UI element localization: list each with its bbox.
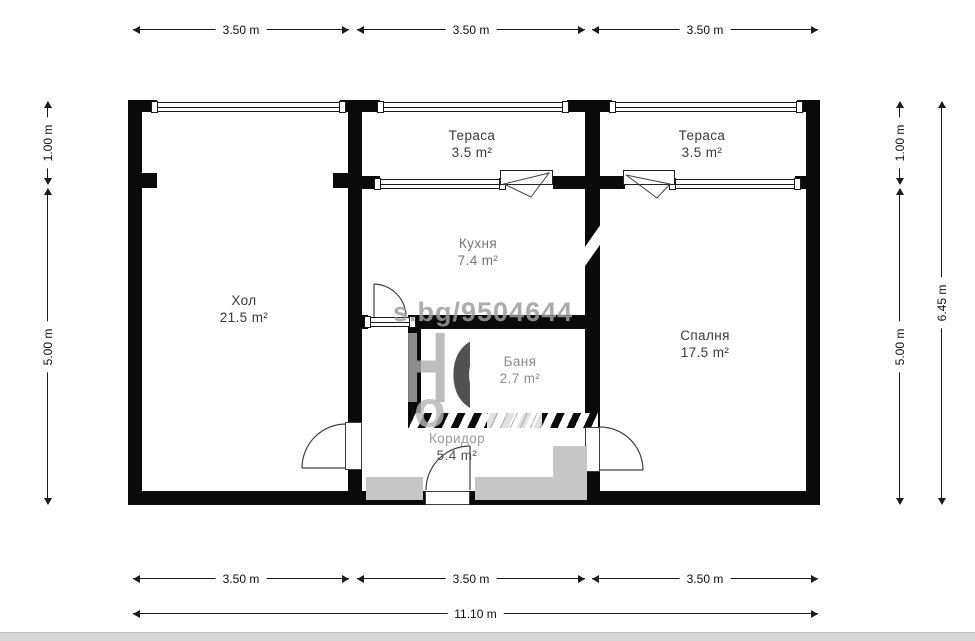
watermark-block-3 [553,446,587,500]
balcony-door-tilt-symbol-1 [504,173,549,197]
watermark-letter-o: О [449,326,470,416]
room-name: Хол [164,293,324,310]
room-label-hall: Хол 21.5 m² [164,293,324,327]
page-bottom-edge [0,632,975,641]
room-area: 3.5 m² [392,145,552,162]
room-name: Спалня [625,328,785,345]
room-name: Коридор [377,431,537,448]
room-area: 21.5 m² [164,310,324,327]
room-area: 5.4 m² [377,448,537,465]
balcony-door-tilt-symbol-2 [626,175,670,198]
room-area: 17.5 m² [625,345,785,362]
room-name: Кухня [398,236,558,253]
watermark-block-1 [366,477,423,500]
room-area: 7.4 m² [398,253,558,270]
room-label-bedroom: Спалня 17.5 m² [625,328,785,362]
room-label-kitchen: Кухня 7.4 m² [398,236,558,270]
bedroom-door-arc [600,427,643,470]
room-label-terrace-2: Тераса 3.5 m² [622,128,782,162]
watermark-letter-o-small: о [414,384,446,436]
watermark-letter-o-glyph: О [449,326,470,416]
room-area: 3.5 m² [622,145,782,162]
room-name: Тераса [392,128,552,145]
room-label-terrace-1: Тераса 3.5 m² [392,128,552,162]
floor-plan-page: Тераса 3.5 m² Тераса 3.5 m² Хол 21.5 m² … [0,0,975,641]
room-name: Тераса [622,128,782,145]
hall-door-arc [302,424,346,468]
room-label-corridor: Коридор 5.4 m² [377,431,537,465]
